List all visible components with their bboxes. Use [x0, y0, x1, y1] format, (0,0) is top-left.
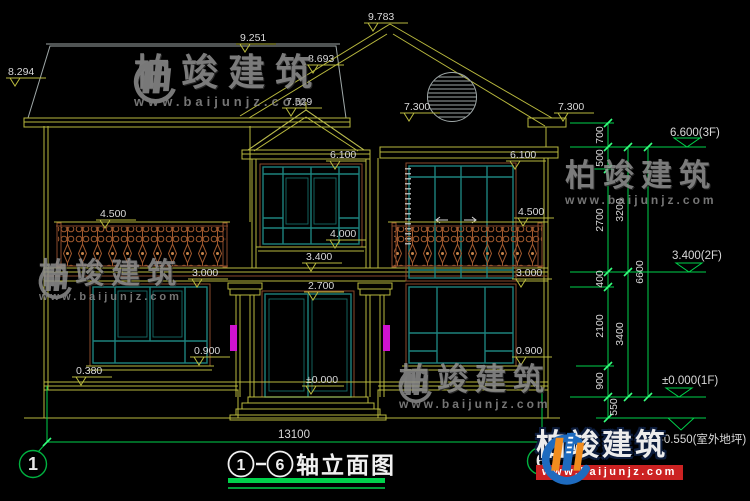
- dim-bay-peak: 7.529: [286, 96, 312, 108]
- dim-floor2: 3.400: [306, 251, 332, 263]
- title-axis-end: 6: [276, 457, 285, 474]
- chain-900: 900: [594, 372, 606, 390]
- chain-700: 700: [594, 126, 606, 144]
- dim-rail-right: 4.500: [518, 206, 544, 218]
- chain-550: 550: [608, 398, 620, 416]
- elevation-svg: 9.783 9.251 8.693 8.294 7.529 7.300 7.30…: [0, 0, 750, 501]
- chain-2700: 2700: [594, 208, 606, 232]
- dim-plinth-top: 0.380: [76, 365, 102, 377]
- dim-sill-right: 0.900: [516, 345, 542, 357]
- dim-win2f-center: 6.100: [330, 149, 356, 161]
- title-axis-start: 1: [237, 457, 246, 474]
- overall-width-dimension: 13100 1 6: [20, 386, 555, 478]
- drawing-title: 轴立面图: [296, 452, 396, 478]
- facade-dimension-labels: 9.783 9.251 8.693 8.294 7.529 7.300 7.30…: [6, 11, 594, 394]
- elevation-markers: 6.600(3F) 3.400(2F) ±0.000(1F) -0.550(室外…: [660, 127, 746, 446]
- plinth-right: [378, 390, 548, 418]
- dim-door-top: 2.700: [308, 280, 334, 292]
- dim-balcony-left: 3.000: [192, 267, 218, 279]
- dim-floor1: ±0.000: [306, 374, 338, 386]
- dim-balcony-right: 3.000: [516, 267, 542, 279]
- dim-ridge-left: 9.251: [240, 32, 266, 44]
- dim-rail-left: 4.500: [100, 208, 126, 220]
- dim-bay-sill: 4.000: [330, 228, 356, 240]
- dim-peak: 9.783: [368, 11, 394, 23]
- chain-3400: 3400: [614, 322, 626, 346]
- chain-3200: 3200: [614, 198, 626, 222]
- chain-500: 500: [594, 149, 606, 167]
- title-underline-thick: [228, 478, 385, 483]
- level-3f: 6.600(3F): [670, 127, 720, 139]
- cad-elevation-drawing: 9.783 9.251 8.693 8.294 7.529 7.300 7.30…: [0, 0, 750, 501]
- chain-400: 400: [594, 270, 606, 288]
- plinth-left: [44, 390, 238, 418]
- chain-6600: 6600: [634, 260, 646, 284]
- window-1f-right: [402, 284, 520, 370]
- plinth: [24, 382, 560, 418]
- company-logo: 柏竣建筑 www.baijunjz.com: [534, 428, 683, 480]
- dim-eave-far-left: 8.294: [8, 66, 34, 78]
- dim-eave-right: 7.300: [558, 101, 584, 113]
- chain-2100: 2100: [594, 314, 606, 338]
- dim-ridge-mid: 8.693: [308, 53, 334, 65]
- entry-steps: [230, 397, 386, 420]
- level-1f: ±0.000(1F): [662, 375, 718, 387]
- dim-sill-left: 0.900: [194, 345, 220, 357]
- company-logo-icon: [534, 428, 590, 490]
- axis-1-label: 1: [28, 454, 38, 474]
- balcony-railing-right: [388, 222, 548, 267]
- left-roof: [24, 44, 350, 127]
- dim-win2f-right: 6.100: [510, 149, 536, 161]
- gable-vent: [427, 73, 477, 122]
- wall-lamp-left: [230, 325, 237, 351]
- level-2f: 3.400(2F): [672, 250, 722, 262]
- wall-lamp-right: [383, 325, 390, 351]
- balcony-railing-left: [54, 222, 230, 267]
- title-block: 1 6 轴立面图: [228, 452, 396, 489]
- dim-eave-center: 7.300: [404, 101, 430, 113]
- overall-width-label: 13100: [278, 429, 310, 441]
